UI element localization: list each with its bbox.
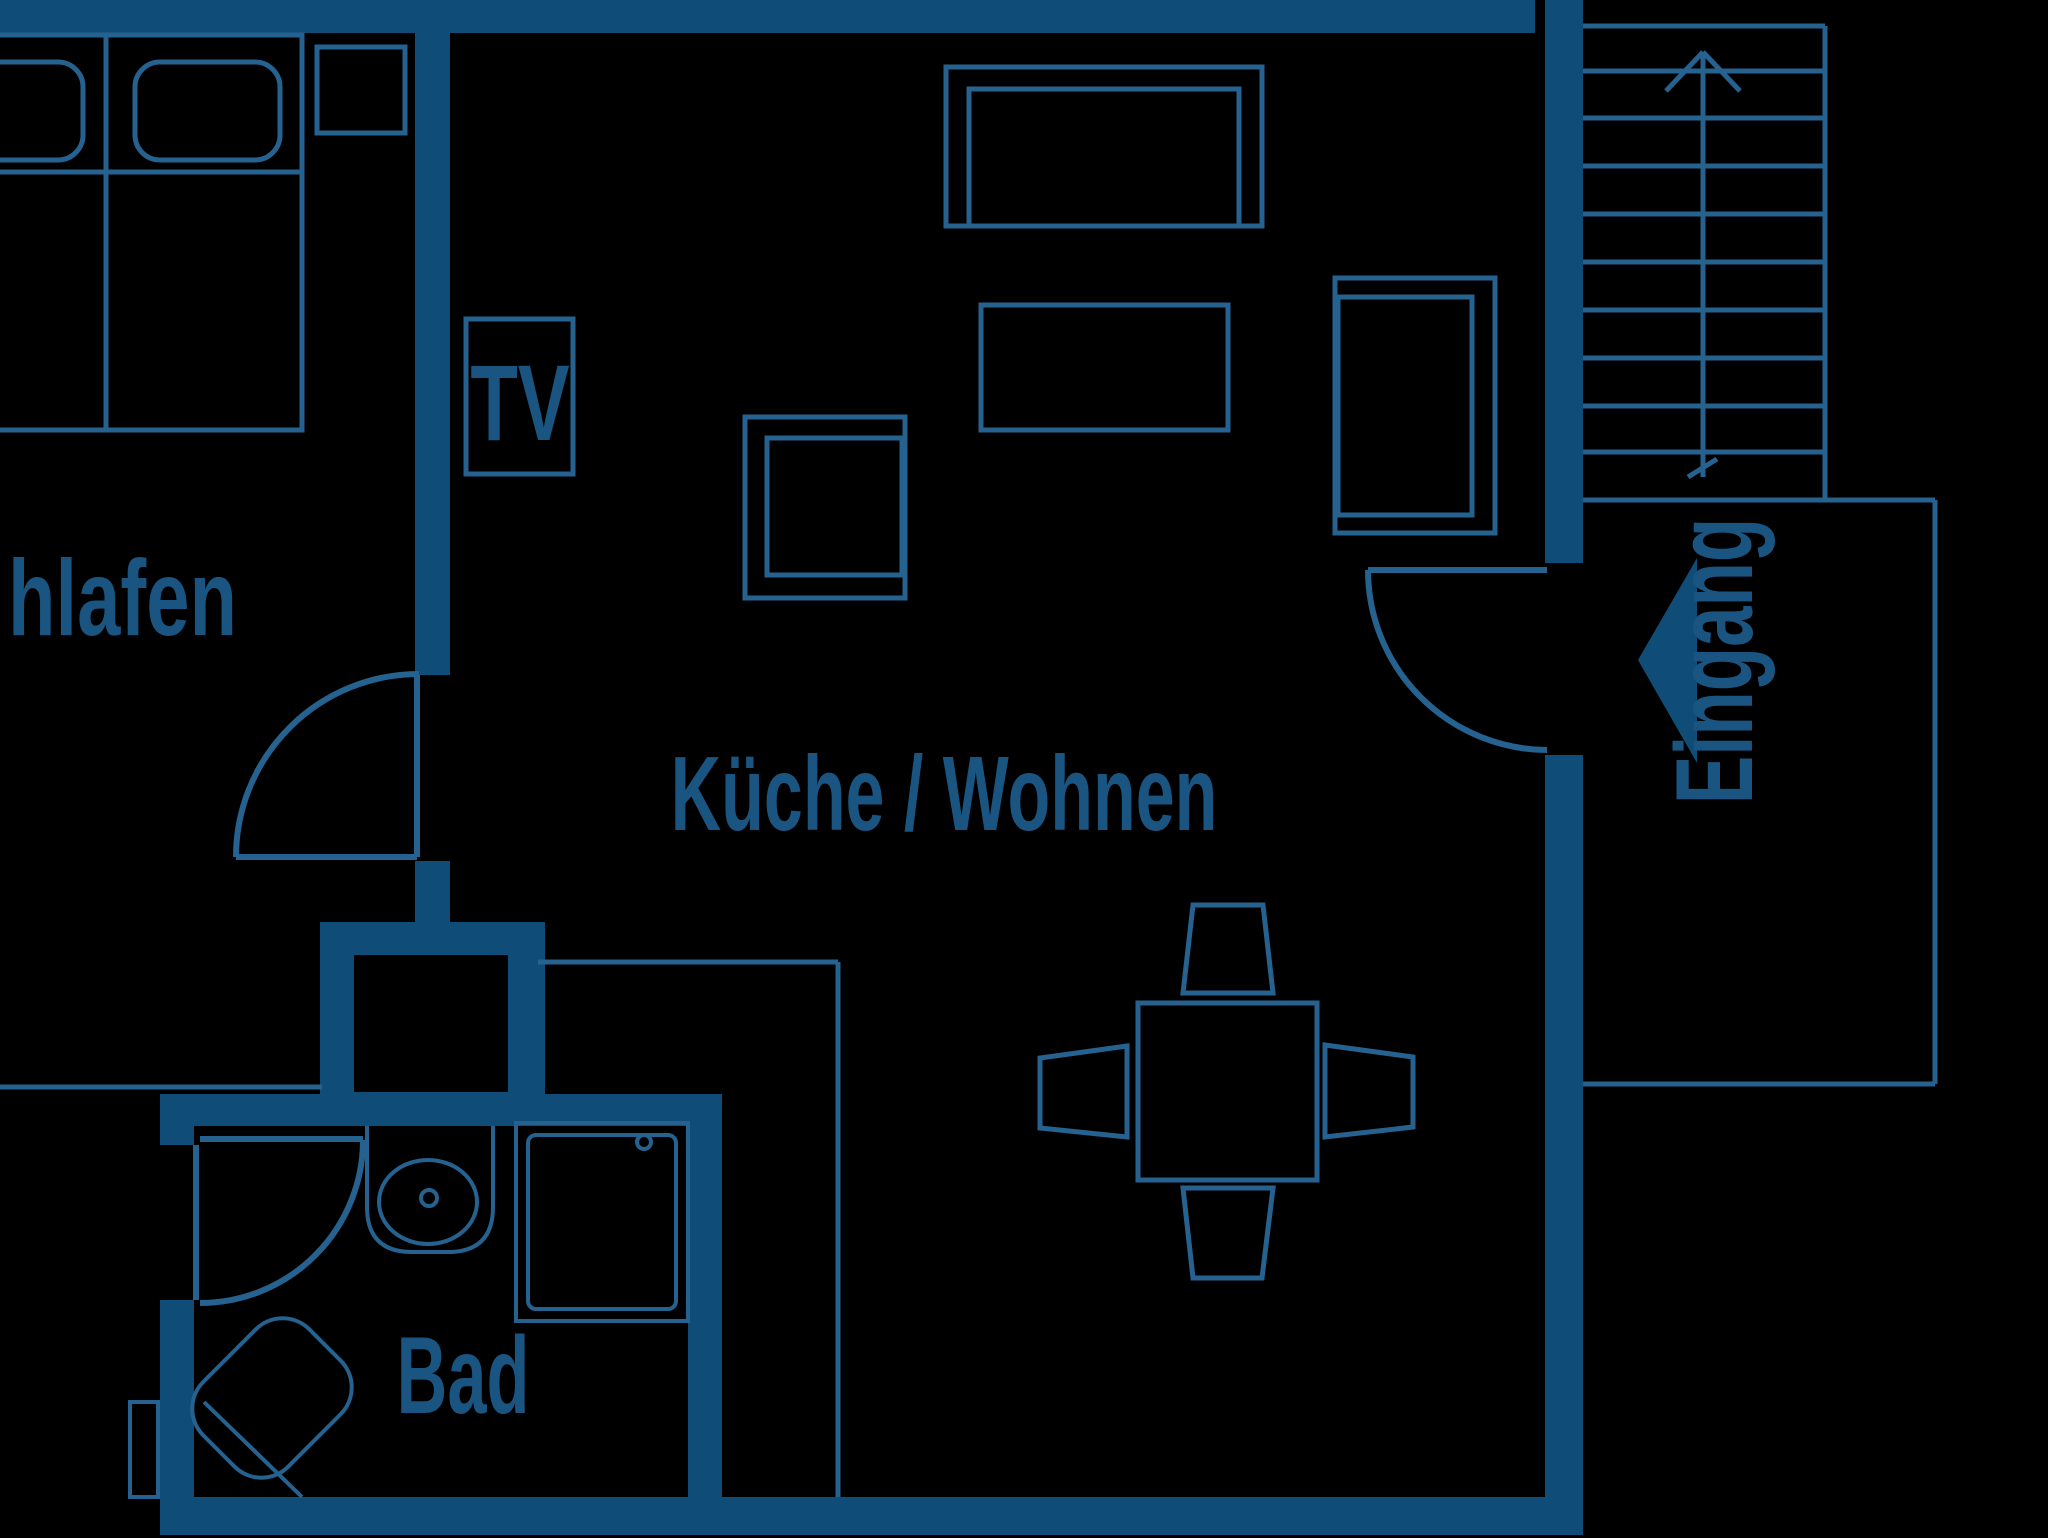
double-bed xyxy=(0,35,302,430)
floor-plan: hlafen TV Küche / Wohnen Bad Eingang xyxy=(0,0,2048,1538)
wall-bedroom-divider xyxy=(415,0,450,675)
bedroom-door xyxy=(236,674,419,857)
side-table-top xyxy=(767,438,902,575)
sofa-seat xyxy=(969,89,1239,226)
shower xyxy=(516,1123,688,1321)
wall-bath-right xyxy=(688,1094,722,1497)
chimney-shaft-void xyxy=(354,955,508,1092)
bedroom-label: hlafen xyxy=(8,537,237,658)
outside-niche xyxy=(130,1402,158,1497)
entrance-door-swing-arc xyxy=(1368,570,1547,750)
shower-drain xyxy=(637,1135,651,1149)
entrance-door xyxy=(1368,570,1547,750)
wall-bath-left-upper xyxy=(160,1094,194,1145)
wall-bottom xyxy=(160,1497,1583,1535)
dining-table xyxy=(1138,1003,1317,1180)
labels: hlafen TV Küche / Wohnen Bad Eingang xyxy=(8,342,1776,1436)
dining-chair-bottom xyxy=(1183,1188,1273,1278)
wall-right-upper xyxy=(1545,0,1583,563)
armchair-seat xyxy=(1338,297,1472,515)
wall-right-lower xyxy=(1545,755,1583,1535)
sink-drain xyxy=(421,1190,437,1206)
bathroom-label: Bad xyxy=(397,1313,530,1437)
bathroom-door xyxy=(196,1139,363,1303)
shower-tray xyxy=(528,1135,676,1309)
pillow-right xyxy=(135,62,280,160)
pillow-left xyxy=(0,62,83,160)
living-room-label: Küche / Wohnen xyxy=(671,736,1218,854)
dining-chair-right xyxy=(1325,1045,1413,1137)
tv-label: TV xyxy=(470,342,570,463)
dining-chair-left xyxy=(1040,1046,1127,1137)
sink-basin xyxy=(379,1160,477,1244)
bathroom-fixtures xyxy=(177,1123,688,1497)
bedroom-furniture xyxy=(0,35,405,430)
wall-top xyxy=(0,0,1535,33)
wall-bath-left-lower xyxy=(160,1300,194,1497)
wall-stub-below-door xyxy=(415,861,450,923)
coffee-table xyxy=(981,305,1228,430)
floor-plan-canvas: hlafen TV Küche / Wohnen Bad Eingang xyxy=(0,0,2048,1538)
bathroom-door-swing-arc xyxy=(200,1140,363,1303)
dining-chair-top xyxy=(1183,905,1273,993)
entrance-label: Eingang xyxy=(1653,518,1776,804)
nightstand xyxy=(317,47,405,133)
bedroom-door-swing-arc xyxy=(236,674,419,857)
staircase xyxy=(1583,26,1825,500)
bath-mat xyxy=(177,1303,368,1494)
